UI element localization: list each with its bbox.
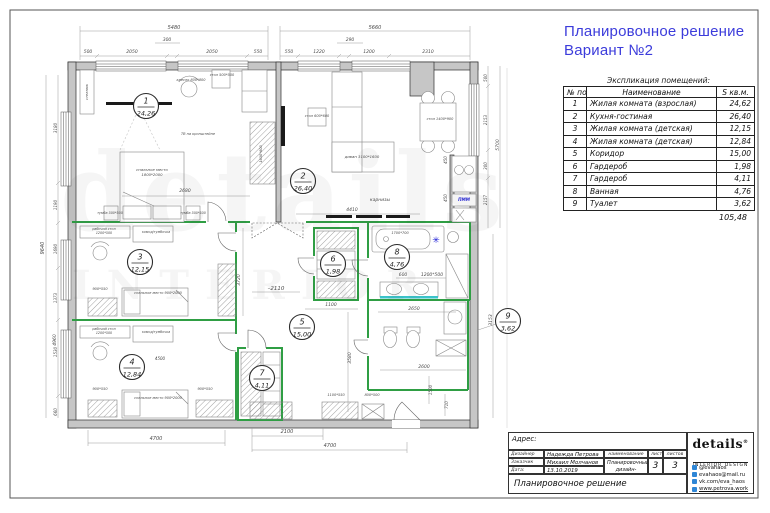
room-marker-2: 226,40	[291, 169, 316, 194]
svg-text:1,98: 1,98	[326, 268, 340, 276]
instagram-icon	[692, 465, 697, 470]
tv-room2	[281, 106, 285, 146]
explication-cell: Жилая комната (взрослая)	[587, 98, 717, 111]
explication-cell: 3	[564, 123, 587, 136]
dim-label: 2600	[418, 364, 430, 370]
sheet-number: 3	[648, 458, 663, 474]
svg-text:24,26: 24,26	[137, 110, 156, 118]
explication-row: 7Гардероб4,11	[564, 173, 755, 186]
dim-label: 4500	[155, 356, 166, 361]
furniture-label: 1100*550	[327, 393, 345, 397]
bed-room1	[120, 152, 184, 222]
dim-label: 4960	[52, 334, 58, 346]
social-vk: vk.com/eva_haos	[699, 479, 745, 485]
fixtures	[372, 226, 468, 356]
explication-cell: 12,84	[717, 135, 755, 148]
boiler	[448, 232, 459, 243]
dim-label: 3180	[53, 122, 58, 133]
shaft-box	[436, 340, 466, 356]
room-marker-9: 93,62	[496, 309, 521, 334]
dim-label: 2050	[126, 49, 138, 55]
furniture-label: ТВ на кронштейне	[181, 132, 215, 136]
washing-machine	[444, 302, 466, 334]
social-links: @evahaos evahaos@mail.ru vk.com/eva_haos…	[692, 464, 748, 493]
furniture-label: 1800*2000	[141, 172, 163, 177]
explication-cell: 4,11	[717, 173, 755, 186]
svg-text:4,11: 4,11	[255, 382, 269, 390]
dim-label: 450	[443, 156, 448, 164]
explication-table: № пом Наименование S кв.м. 1Жилая комнат…	[563, 86, 755, 211]
furniture-label: спальное место 900*2000	[134, 396, 182, 400]
cornice-bars	[326, 215, 410, 218]
dim-label: 550	[285, 49, 294, 55]
furniture-label: 900*550	[197, 387, 213, 391]
explication-cell: 9	[564, 198, 587, 211]
explication-cell: 6	[564, 160, 587, 173]
svg-text:5: 5	[299, 318, 304, 327]
furniture-label: стеллаж	[85, 83, 89, 100]
explication-cell: Коридор	[587, 148, 717, 161]
explication-cell: Жилая комната (детская)	[587, 123, 717, 136]
furniture-label: диван 3100*1600	[344, 154, 380, 159]
document-title: Планировочное решение	[508, 474, 687, 494]
furniture-label: спальное место 900*2000	[134, 291, 182, 295]
wardrobe	[218, 264, 236, 316]
dim-label: 5480	[168, 25, 181, 31]
title-line2: Вариант №2	[564, 41, 759, 60]
furniture-label: стол 500*500	[210, 73, 235, 77]
svg-text:4,76: 4,76	[390, 261, 404, 269]
explication-cell: 8	[564, 185, 587, 198]
dim-label: 290	[346, 37, 355, 43]
dim-label: –2110	[268, 286, 285, 292]
furniture-label: комод/тумбочка	[142, 330, 170, 334]
explication-cell: 15,00	[717, 148, 755, 161]
dresser-room3	[133, 226, 173, 242]
dim-label: 600	[399, 272, 408, 278]
dim-label: 2153	[483, 114, 488, 125]
dim-label: 5660	[369, 25, 382, 31]
dim-label: 1100	[325, 302, 337, 308]
explication-cell: Туалет	[587, 198, 717, 211]
double-washbasin	[380, 282, 438, 299]
dim-label: 3153	[488, 314, 494, 326]
dim-label: 300	[163, 37, 172, 43]
logo-box: details® INTERIOR DESIGN @evahaos evahao…	[687, 432, 754, 494]
dishwasher-label: ПММ	[458, 197, 471, 202]
furniture-label: 800*500	[364, 393, 380, 397]
col-header-number: № пом	[564, 87, 587, 98]
email-icon	[692, 472, 697, 477]
date-label: Дата:	[508, 466, 544, 474]
explication-cell: 3,62	[717, 198, 755, 211]
dim-label: 710	[444, 401, 449, 409]
wardrobe	[196, 400, 233, 417]
dim-label: 1500	[428, 384, 433, 395]
dim-label: 4700	[324, 443, 337, 449]
explication-total: 105,48	[563, 213, 747, 222]
furniture-label: 1700*700	[391, 231, 409, 235]
address-field: Адрес:	[508, 432, 687, 450]
furniture-label: 1630*600	[259, 145, 263, 163]
title-line1: Планировочное решение	[564, 22, 759, 41]
dim-label: 1220	[313, 49, 325, 55]
logo-brand-text: details	[692, 436, 743, 451]
explication-cell: Кухня-гостиная	[587, 110, 717, 123]
room-marker-5: 515,00	[290, 315, 315, 340]
title-block: Адрес: Дизайнер Надежда Петрова Заказчик…	[508, 432, 754, 494]
explication-row: 1Жилая комната (взрослая)24,62	[564, 98, 755, 111]
svg-text:9: 9	[505, 312, 510, 321]
explication-cell: 4,76	[717, 185, 755, 198]
dim-label: 1530	[53, 346, 58, 357]
explication-body: 1Жилая комната (взрослая)24,622Кухня-гос…	[564, 98, 755, 211]
social-handle: @evahaos	[699, 465, 727, 471]
name-header: наименование	[604, 450, 648, 458]
furniture-label: 1200*500	[96, 331, 112, 335]
svg-text:8: 8	[394, 248, 399, 257]
explication-row: 3Жилая комната (детская)12,15	[564, 123, 755, 136]
dim-label: карнизы	[370, 198, 391, 203]
social-row: www.petrova.work	[692, 486, 748, 493]
explication-cell: Ванная	[587, 185, 717, 198]
bath-cabinet	[446, 254, 468, 298]
explication-row: 9Туалет3,62	[564, 198, 755, 211]
sheets-header: листов	[663, 450, 687, 458]
dim-label: 1373	[53, 292, 58, 303]
dim-label: 1190	[53, 199, 58, 210]
dim-label: 500	[84, 49, 93, 55]
furniture-label: стол 600*600	[305, 114, 330, 118]
furniture-label: 900*550	[92, 387, 108, 391]
client-label: Заказчик	[508, 458, 544, 466]
dim-label: 1200*500	[421, 272, 443, 278]
svg-text:3,62: 3,62	[501, 325, 515, 333]
registered-mark: ®	[743, 439, 749, 445]
wardrobe	[88, 400, 117, 417]
date-value: 13.10.2019	[544, 466, 604, 474]
dim-label: 4410	[346, 207, 358, 213]
dim-label: 1200	[363, 49, 375, 55]
dim-label: 3580	[347, 352, 353, 364]
toilet	[384, 327, 398, 348]
dim-label: 9640	[40, 242, 46, 255]
designer-label: Дизайнер	[508, 450, 544, 458]
room-marker-3: 312,15	[128, 250, 153, 275]
explication-row: 2Кухня-гостиная26,40	[564, 110, 755, 123]
dining-set	[420, 92, 456, 153]
sheets-total: 3	[663, 458, 687, 474]
social-website: www.petrova.work	[699, 486, 748, 492]
social-row: @evahaos	[692, 464, 748, 471]
explication-cell: Гардероб	[587, 173, 717, 186]
designer-value: Надежда Петрова	[544, 450, 604, 458]
dim-label: 5700	[495, 139, 501, 151]
furniture-label: тумба 500*500	[180, 211, 206, 215]
loveseat	[242, 70, 267, 112]
svg-text:6: 6	[330, 255, 335, 264]
svg-text:26,40: 26,40	[294, 185, 313, 193]
social-email: evahaos@mail.ru	[699, 472, 745, 478]
room-marker-1: 124,26	[134, 94, 159, 119]
explication-cell: 1	[564, 98, 587, 111]
explication-cell: Гардероб	[587, 160, 717, 173]
svg-text:12,15: 12,15	[131, 266, 150, 274]
dresser-room4	[133, 326, 173, 342]
website-icon	[692, 487, 697, 492]
dim-label: 2310	[422, 49, 434, 55]
room-marker-6: 61,98	[321, 252, 346, 277]
bed-room4	[122, 390, 188, 418]
furniture-label: комод/тумбочка	[142, 230, 170, 234]
hall-wardrobe	[250, 402, 292, 419]
col-header-name: Наименование	[587, 87, 717, 98]
explication-header-row: № пом Наименование S кв.м.	[564, 87, 755, 98]
col-header-area: S кв.м.	[717, 87, 755, 98]
bidet	[407, 327, 421, 348]
svg-text:1: 1	[143, 97, 148, 106]
page-title: Планировочное решение Вариант №2	[564, 22, 759, 60]
social-row: evahaos@mail.ru	[692, 471, 748, 478]
svg-text:15,00: 15,00	[293, 331, 312, 339]
svg-text:12,84: 12,84	[123, 371, 142, 379]
furniture-label: кресло 800*800	[176, 78, 206, 82]
svg-text:3: 3	[137, 253, 142, 262]
project-name: Планировочный дизайн-проект	[604, 458, 648, 474]
dim-label: 2650	[408, 306, 420, 312]
explication-cell: 1,98	[717, 160, 755, 173]
furniture-label: стол 1400*900	[427, 117, 455, 121]
explication-row: 4Жилая комната (детская)12,84	[564, 135, 755, 148]
explication-cell: Жилая комната (детская)	[587, 135, 717, 148]
furniture-label: 900*550	[92, 287, 108, 291]
dim-label: 2680	[179, 188, 191, 194]
explication-cell: 5	[564, 148, 587, 161]
explication-cell: 7	[564, 173, 587, 186]
explication-row: 5Коридор15,00	[564, 148, 755, 161]
dim-label: 450	[443, 194, 448, 202]
chair-room3	[91, 242, 109, 260]
dim-label: 3720	[236, 274, 242, 286]
dim-label: 500	[483, 74, 488, 82]
svg-text:4: 4	[129, 358, 134, 367]
svg-text:2: 2	[300, 172, 305, 181]
room-marker-4: 412,84	[120, 355, 145, 380]
room-marker-7: 74,11	[250, 366, 275, 391]
furniture-label: тумба 500*500	[97, 211, 123, 215]
furniture-label: 1200*500	[96, 231, 112, 235]
dim-label: 4700	[150, 436, 163, 442]
drawing-sheet: 5480566030029050020502050550550122012002…	[0, 0, 770, 513]
dim-label: 2100	[281, 429, 294, 435]
kitchen-units	[452, 156, 476, 222]
explication-cell: 24,62	[717, 98, 755, 111]
note-asterisk: ✳	[432, 236, 440, 246]
chair-room4	[91, 342, 109, 360]
dim-label: 2050	[206, 49, 218, 55]
dim-label: 300	[483, 162, 488, 170]
hall-wardrobe	[322, 402, 358, 419]
explication-row: 8Ванная4,76	[564, 185, 755, 198]
explication-cell: 2	[564, 110, 587, 123]
dim-label: 660	[53, 408, 58, 416]
explication-cell: 12,15	[717, 123, 755, 136]
wardrobe	[88, 298, 117, 316]
social-row: vk.com/eva_haos	[692, 478, 748, 485]
explication-cell: 26,40	[717, 110, 755, 123]
shaft-box	[362, 404, 384, 419]
explication-row: 6Гардероб1,98	[564, 160, 755, 173]
explication-cell: 4	[564, 135, 587, 148]
dim-label: 1690	[53, 243, 58, 254]
vk-icon	[692, 479, 697, 484]
client-value: Михаил Молчанов	[544, 458, 604, 466]
room-marker-8: 84,76	[385, 245, 410, 270]
logo: details® INTERIOR DESIGN	[688, 433, 753, 462]
dim-label: 2157	[483, 194, 488, 205]
explication-caption: Экспликация помещений:	[563, 76, 754, 85]
sheet-header: лист	[648, 450, 663, 458]
dim-label: 550	[254, 49, 263, 55]
